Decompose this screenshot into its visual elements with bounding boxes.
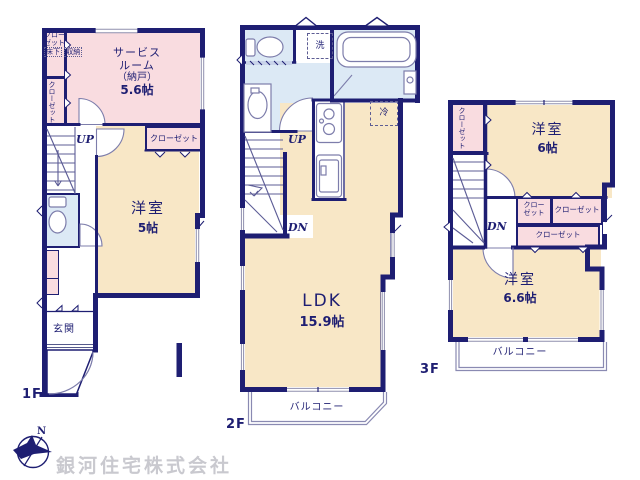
f1-closet-side-label: クローゼット [48, 81, 56, 123]
f1-floor-label: 1F [22, 388, 42, 403]
f3-closet-side-label: クローゼット [458, 107, 466, 149]
floor-plan-page: サービス ルーム （納戸） 5.6帖 クロー ゼット 床下 収納 クローゼット … [0, 0, 640, 480]
f3-closet-c-label: クローゼット [518, 231, 598, 240]
f3-balcony-label: バルコニー [475, 347, 565, 359]
f2-toilet-threshold [246, 61, 292, 65]
f1-toilet-fixture [49, 197, 66, 233]
f3-closet-b-label: クローゼット [552, 206, 602, 215]
f1-bedroom-closet-label: クローゼット [145, 134, 203, 143]
f2-laundry-label: 洗 [315, 41, 324, 51]
f1-bedroom-label: 洋室 5帖 [98, 200, 198, 236]
f2-ldk-label: LDK 15.9帖 [272, 292, 372, 330]
f2-fridge-box: 冷 [370, 101, 398, 126]
f3-stairs [453, 158, 484, 243]
f2-floor-label: 2F [226, 418, 246, 433]
f2-balcony-label: バルコニー [272, 402, 362, 414]
f2-walls [242, 27, 418, 390]
f2-stairs [245, 136, 283, 232]
f1-entrance-graphics [47, 306, 182, 395]
f1-service-room-label: サービス ルーム （納戸） 5.6帖 [94, 47, 180, 98]
f2-laundry-box: 洗 [307, 33, 333, 59]
f3-floor-label: 3F [420, 363, 440, 378]
f1-stairs [47, 127, 75, 194]
f1-entrance-label: 玄関 [53, 324, 75, 336]
f3-stairs-down-label: DN [487, 221, 507, 234]
f3-closet-a-label: クロー ゼット [517, 201, 551, 217]
f2-fridge-label: 冷 [379, 108, 388, 118]
f2-stairs-up-label: UP [288, 134, 306, 147]
f3-bedroom66-label: 洋室 6.6帖 [465, 272, 575, 306]
f3-bedroom6-label: 洋室 6帖 [490, 122, 605, 156]
f2-stairs-down-label: DN [288, 222, 308, 235]
f1-closet-hatch-label: クロー ゼット 床下 収納 [44, 31, 64, 57]
compass-north-label: N [37, 426, 46, 438]
f2-roof-vent-marks [296, 18, 388, 26]
compass-icon [13, 435, 52, 468]
f1-stairs-up-label: UP [76, 134, 94, 147]
